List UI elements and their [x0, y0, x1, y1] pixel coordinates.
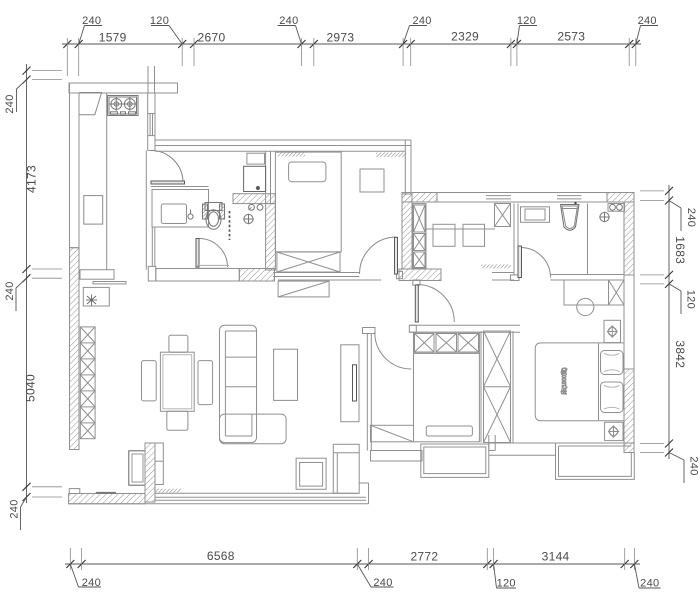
svg-text:240: 240	[685, 208, 697, 227]
svg-text:2973: 2973	[326, 31, 354, 45]
svg-text:240: 240	[638, 15, 657, 27]
svg-text:240: 240	[688, 456, 700, 475]
svg-text:240: 240	[373, 577, 392, 589]
svg-text:240: 240	[279, 15, 298, 27]
svg-text:120: 120	[497, 578, 516, 590]
svg-text:240: 240	[82, 577, 101, 589]
svg-text:240: 240	[412, 15, 431, 27]
svg-text:3842: 3842	[673, 340, 687, 368]
svg-text:240: 240	[82, 15, 101, 27]
svg-text:3144: 3144	[542, 550, 570, 564]
svg-text:240: 240	[640, 578, 659, 590]
svg-text:240: 240	[4, 94, 16, 113]
svg-text:120: 120	[517, 15, 536, 27]
svg-text:2573: 2573	[557, 30, 585, 44]
svg-text:2670: 2670	[198, 31, 226, 45]
svg-text:120: 120	[685, 290, 697, 309]
svg-text:240: 240	[4, 281, 16, 300]
svg-text:1683: 1683	[673, 236, 687, 264]
svg-text:2329: 2329	[451, 30, 479, 44]
svg-text:240: 240	[8, 499, 20, 518]
svg-text:1579: 1579	[99, 31, 127, 45]
svg-text:2772: 2772	[410, 550, 438, 564]
svg-text:床(1800宽): 床(1800宽)	[560, 367, 568, 394]
svg-text:4173: 4173	[25, 165, 39, 193]
svg-text:6568: 6568	[207, 549, 235, 563]
svg-text:5040: 5040	[24, 374, 38, 402]
svg-text:120: 120	[150, 15, 169, 27]
